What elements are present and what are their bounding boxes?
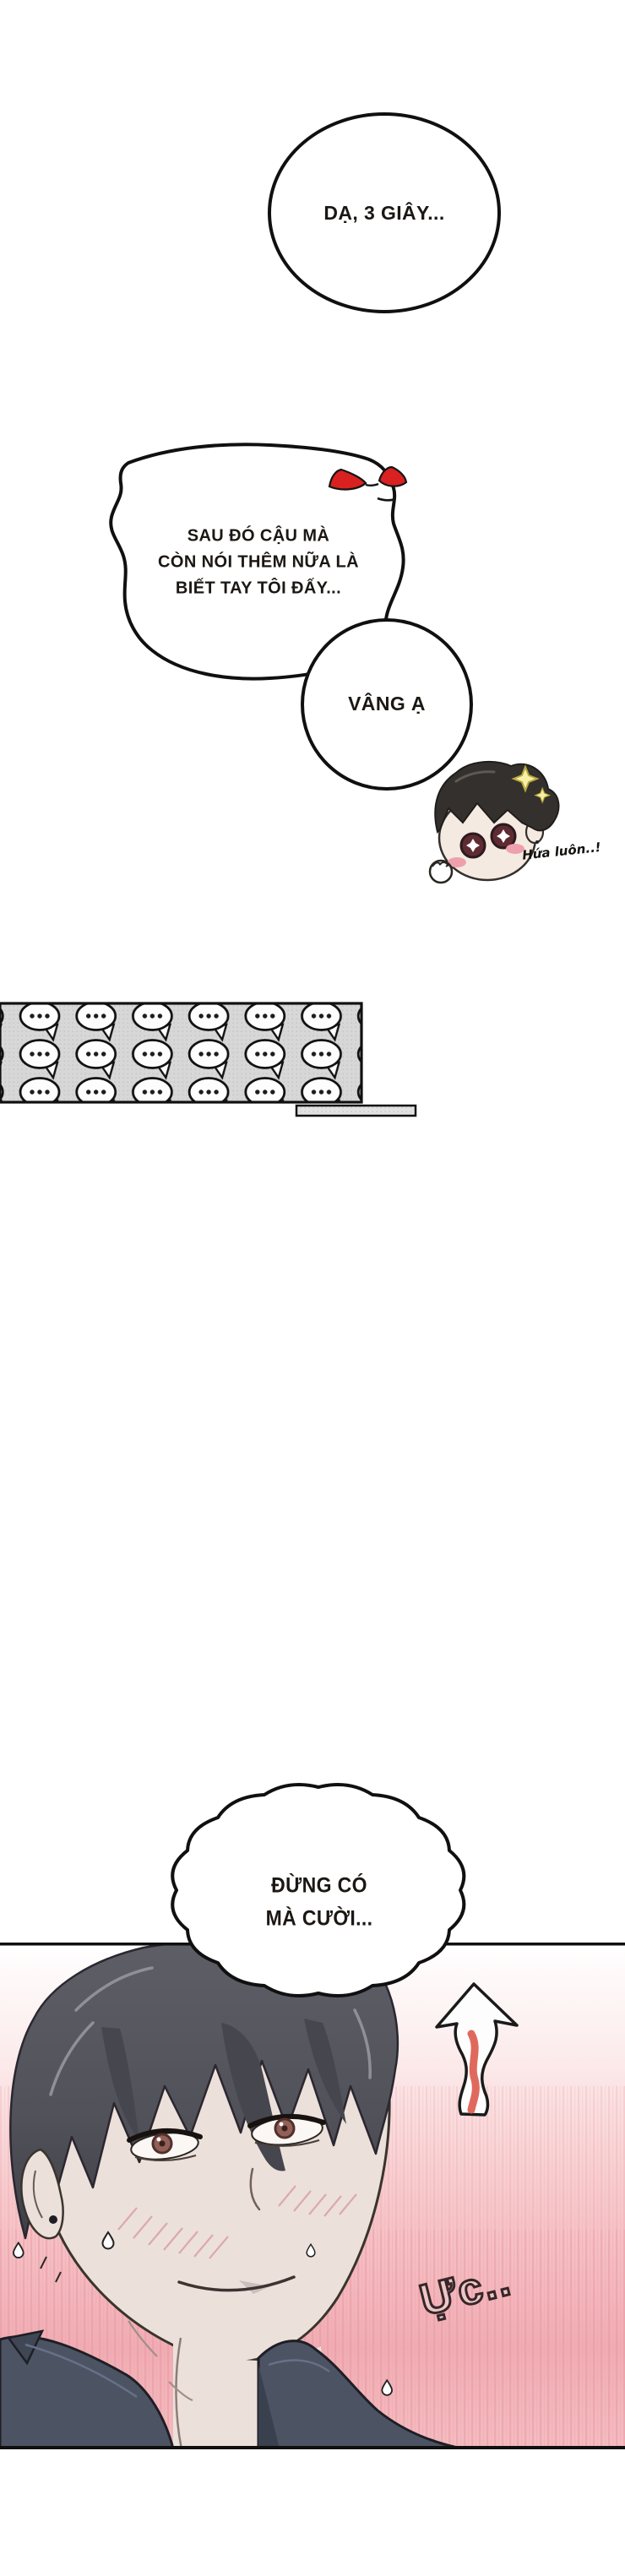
right-eye bbox=[250, 2114, 323, 2149]
bottom-panel bbox=[0, 1939, 625, 2453]
chibi-left-eye bbox=[461, 834, 485, 857]
promise-hand-icon bbox=[430, 861, 452, 883]
pattern-bar bbox=[296, 1106, 416, 1116]
bubble-1-text: DẠ, 3 GIÂY... bbox=[323, 198, 444, 229]
bubble-4-text: ĐỪNG CÓ MÀ CƯỜI... bbox=[266, 1869, 373, 1935]
comic-art bbox=[0, 0, 625, 2576]
earring bbox=[49, 2215, 57, 2224]
chat-bubble-pattern-strip bbox=[0, 1003, 416, 1116]
panel-bottom-border bbox=[0, 2446, 625, 2449]
left-eye bbox=[129, 2129, 200, 2163]
chibi-character bbox=[430, 762, 558, 883]
comic-page: DẠ, 3 GIÂY... SAU ĐÓ CẬU MÀ CÒN NÓI THÊM… bbox=[0, 0, 625, 2576]
bubble-3-text: VÂNG Ạ bbox=[348, 689, 426, 720]
bubble-2-text: SAU ĐÓ CẬU MÀ CÒN NÓI THÊM NỮA LÀ BIẾT T… bbox=[158, 524, 359, 602]
